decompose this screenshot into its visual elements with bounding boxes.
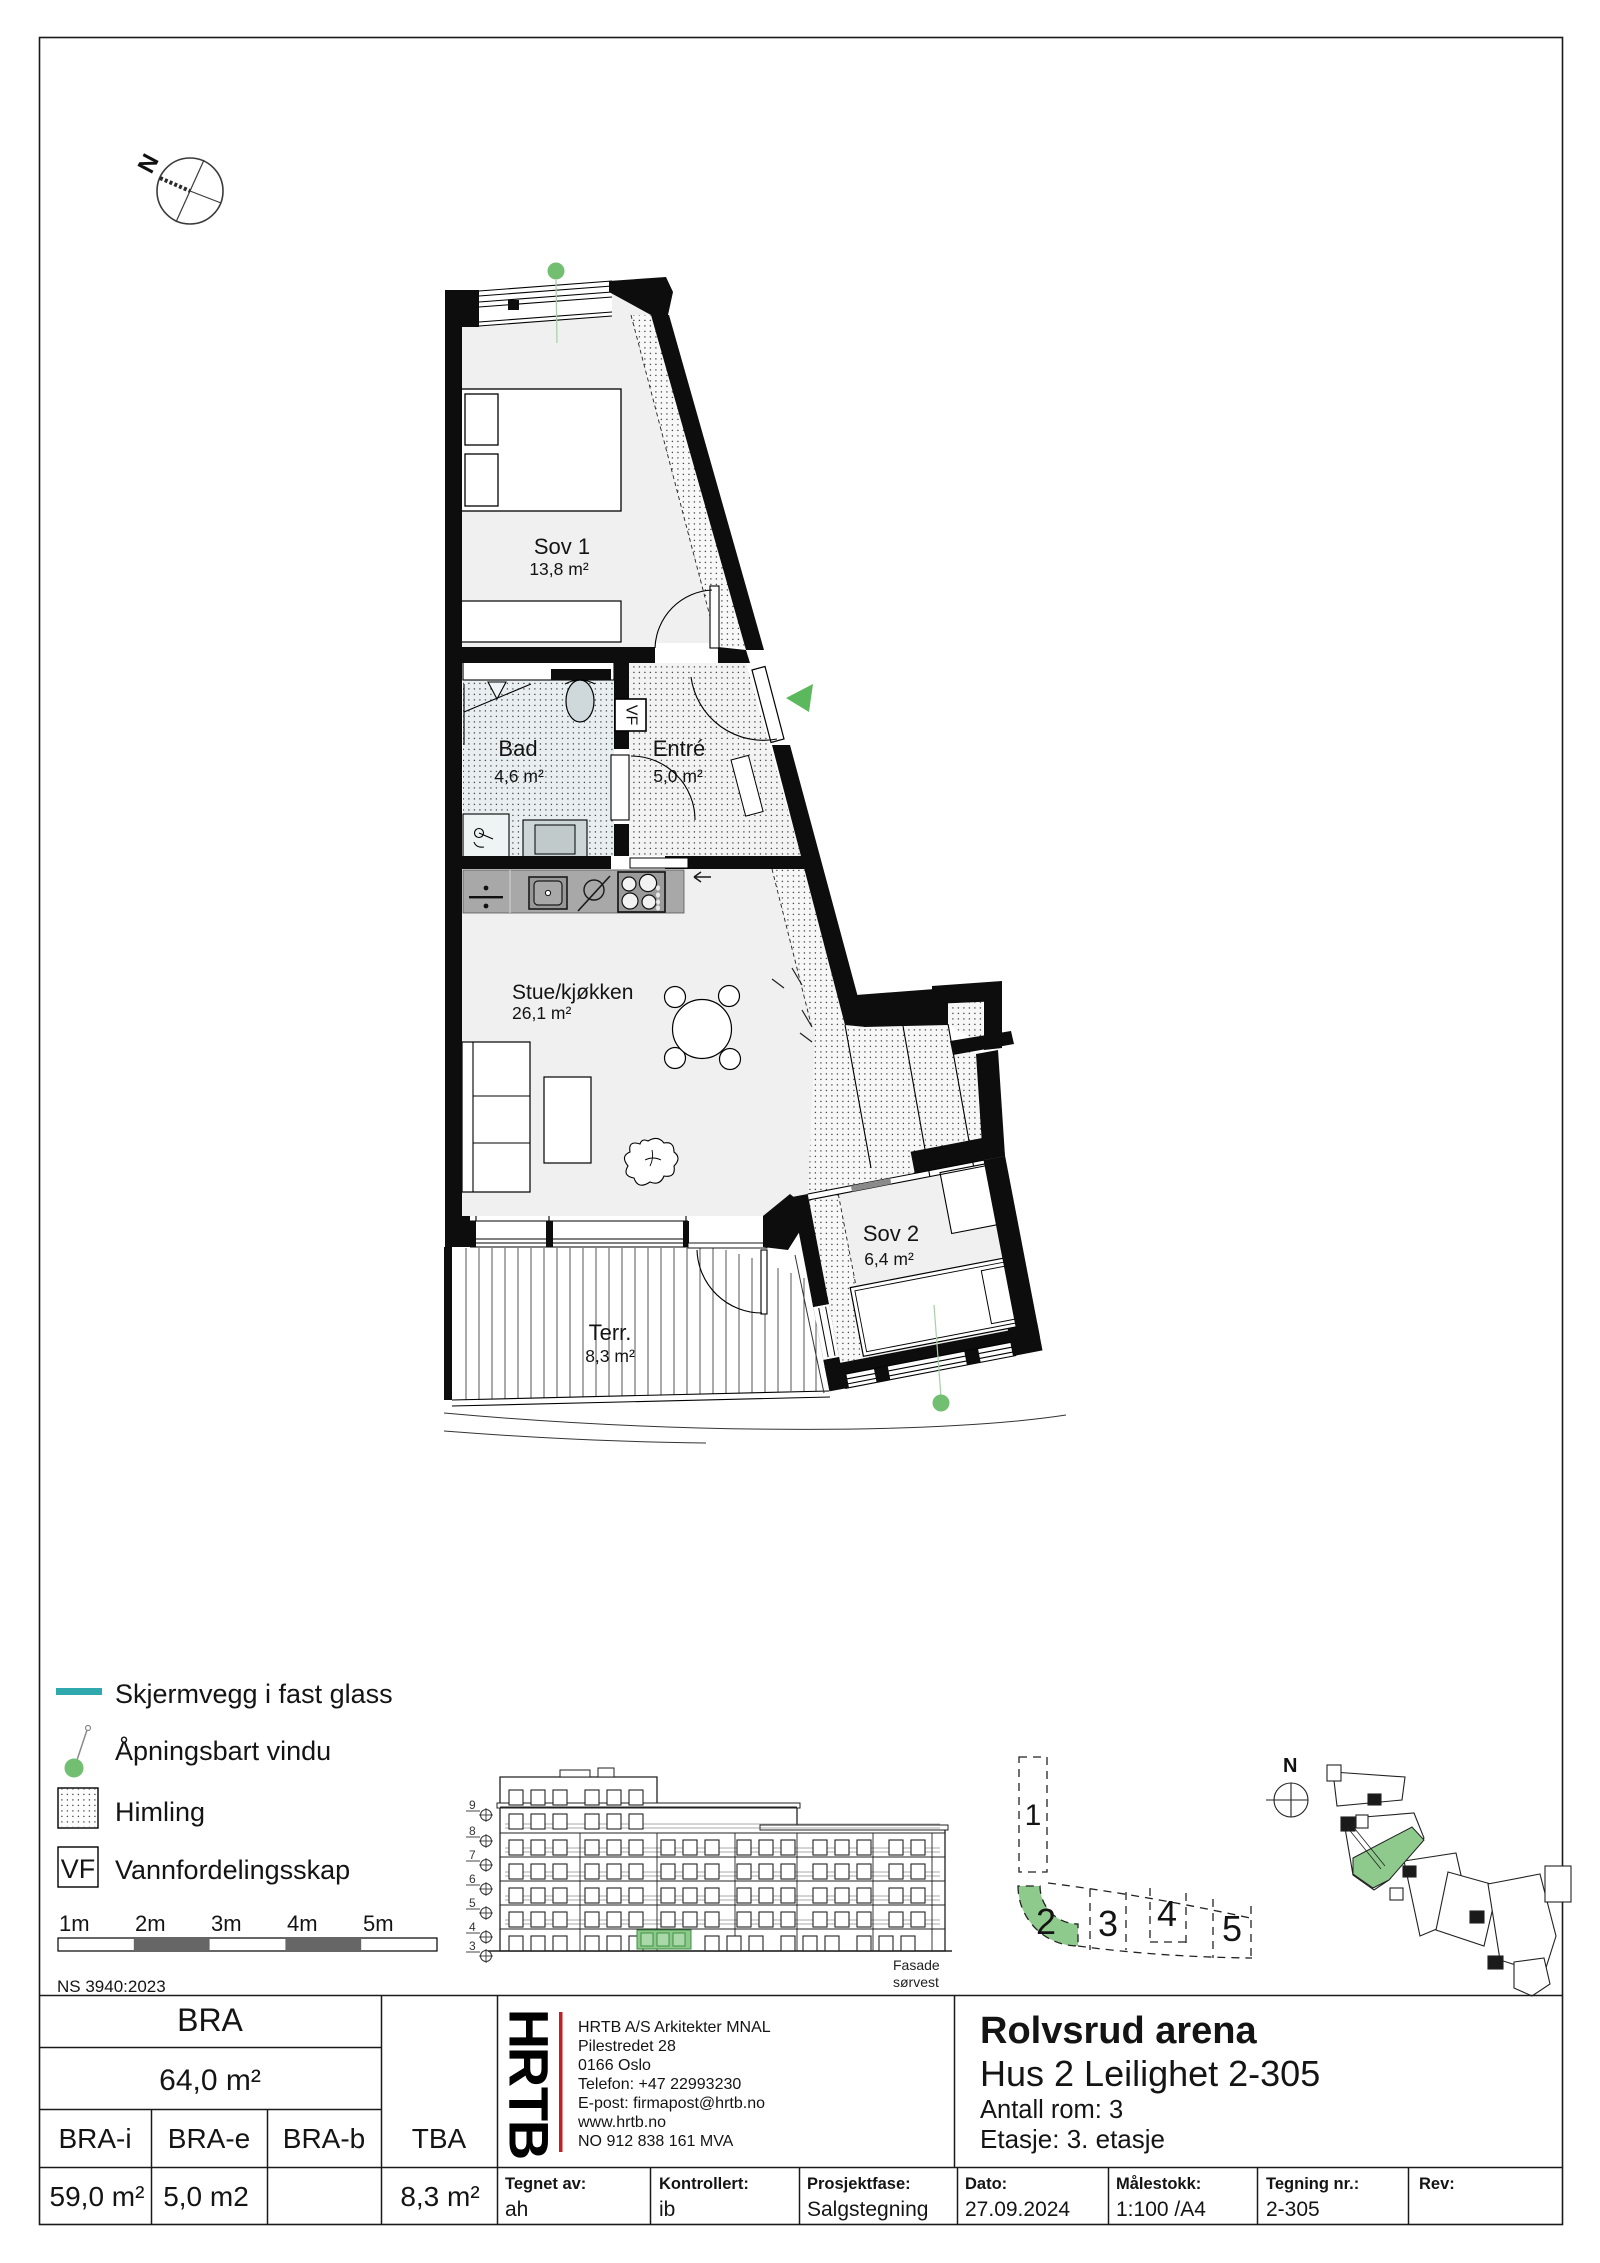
svg-text:5: 5 [469,1896,476,1910]
svg-text:Antall rom: 3: Antall rom: 3 [980,2096,1123,2124]
svg-text:6,4 m²: 6,4 m² [864,1249,914,1269]
svg-text:Hus 2 Leilighet 2-305: Hus 2 Leilighet 2-305 [980,2053,1320,2094]
svg-text:Dato:: Dato: [965,2175,1007,2193]
svg-text:Salgstegning: Salgstegning [807,2198,928,2221]
svg-text:B: B [498,2120,561,2160]
svg-text:7: 7 [469,1848,476,1862]
svg-text:Bad: Bad [498,736,537,761]
svg-text:5: 5 [1222,1908,1242,1949]
svg-text:NS 3940:2023: NS 3940:2023 [57,1977,166,1996]
svg-text:1: 1 [1025,1799,1042,1832]
svg-text:4: 4 [1157,1893,1177,1934]
svg-text:5,0 m2: 5,0 m2 [163,2181,249,2212]
svg-text:Åpningsbart vindu: Åpningsbart vindu [115,1735,331,1766]
svg-text:2-305: 2-305 [1266,2198,1320,2221]
svg-text:BRA: BRA [177,2002,243,2038]
svg-text:2m: 2m [135,1911,166,1936]
svg-text:8,3 m²: 8,3 m² [400,2181,479,2212]
svg-text:3: 3 [1098,1903,1118,1944]
svg-text:Kontrollert:: Kontrollert: [659,2175,749,2193]
svg-text:Entré: Entré [653,736,706,761]
svg-text:6: 6 [469,1872,476,1886]
svg-text:VF: VF [623,705,640,726]
svg-text:sørvest: sørvest [893,1974,939,1990]
svg-text:Etasje: 3. etasje: Etasje: 3. etasje [980,2124,1165,2154]
svg-text:ib: ib [659,2198,675,2221]
svg-text:Tegning nr.:: Tegning nr.: [1266,2175,1359,2193]
svg-text:1m: 1m [59,1911,90,1936]
svg-text:5m: 5m [363,1911,394,1936]
svg-text:E-post: firmapost@hrtb.no: E-post: firmapost@hrtb.no [578,2095,765,2112]
svg-text:4: 4 [469,1920,476,1934]
svg-text:3m: 3m [211,1911,242,1936]
svg-text:BRA-i: BRA-i [58,2123,131,2154]
svg-text:Målestokk:: Målestokk: [1116,2175,1201,2193]
svg-text:ah: ah [505,2198,528,2221]
svg-text:64,0 m²: 64,0 m² [159,2064,261,2097]
svg-text:Himling: Himling [115,1797,205,1827]
svg-text:59,0 m²: 59,0 m² [50,2181,145,2212]
svg-text:NO 912 838 161 MVA: NO 912 838 161 MVA [578,2133,734,2150]
svg-text:Telefon: +47 22993230: Telefon: +47 22993230 [578,2076,741,2093]
svg-text:Skjermvegg i fast glass: Skjermvegg i fast glass [115,1679,393,1709]
svg-text:N: N [1283,1755,1297,1777]
svg-text:26,1 m²: 26,1 m² [512,1003,571,1023]
svg-text:4,6 m²: 4,6 m² [494,766,544,786]
svg-text:2: 2 [1036,1901,1056,1942]
svg-text:Sov 2: Sov 2 [863,1221,919,1246]
svg-text:27.09.2024: 27.09.2024 [965,2198,1070,2221]
svg-text:9: 9 [469,1798,476,1812]
svg-text:Rev:: Rev: [1419,2175,1455,2193]
svg-text:1:100 /A4: 1:100 /A4 [1116,2198,1206,2221]
svg-text:H: H [498,2009,561,2049]
svg-text:4m: 4m [287,1911,318,1936]
svg-text:0166 Oslo: 0166 Oslo [578,2057,651,2074]
svg-text:Sov 1: Sov 1 [534,534,590,559]
svg-text:Tegnet av:: Tegnet av: [505,2175,586,2193]
svg-text:BRA-b: BRA-b [283,2123,365,2154]
svg-text:Fasade: Fasade [893,1957,940,1973]
svg-text:8: 8 [469,1824,476,1838]
svg-text:Rolvsrud arena: Rolvsrud arena [980,2010,1258,2052]
svg-text:VF: VF [61,1854,96,1884]
svg-text:Vannfordelingsskap: Vannfordelingsskap [115,1855,350,1885]
svg-text:3: 3 [469,1939,476,1953]
svg-text:T: T [498,2087,561,2121]
svg-text:8,3 m²: 8,3 m² [585,1346,635,1366]
svg-text:Terr.: Terr. [589,1320,632,1345]
svg-text:TBA: TBA [412,2123,467,2154]
svg-text:Pilestredet 28: Pilestredet 28 [578,2038,676,2055]
svg-text:BRA-e: BRA-e [168,2123,250,2154]
svg-text:Prosjektfase:: Prosjektfase: [807,2175,911,2193]
svg-text:R: R [498,2047,561,2087]
svg-text:13,8 m²: 13,8 m² [529,559,588,579]
svg-text:www.hrtb.no: www.hrtb.no [577,2114,666,2131]
svg-text:HRTB A/S Arkitekter MNAL: HRTB A/S Arkitekter MNAL [578,2019,771,2036]
svg-text:Stue/kjøkken: Stue/kjøkken [512,981,633,1004]
